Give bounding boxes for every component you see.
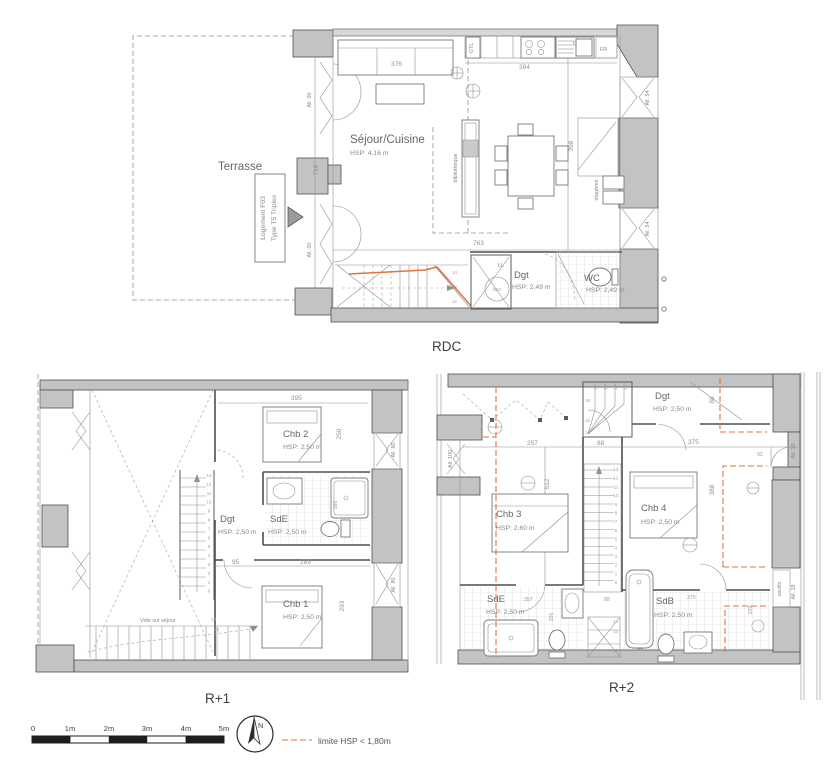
sill-label: All. 80	[391, 443, 397, 458]
dim-376: 376	[391, 61, 402, 68]
dim-229: 229	[748, 606, 754, 615]
dim-88: 88	[597, 440, 605, 447]
sill-label: All. 18	[791, 585, 797, 600]
coffee-table	[376, 84, 424, 104]
dim-289: 289	[300, 559, 311, 566]
chair	[556, 146, 568, 161]
r1-chb2: Chb 2 HSP: 2,50 m 395 250	[218, 395, 368, 462]
rdc-dgt-label: Dgt	[514, 270, 529, 281]
terrasse-outline: Terrasse Logement F03 Type T5 Triplex	[133, 36, 310, 300]
chb1-hsp: HSP: 2,50 m	[283, 614, 322, 621]
step-number: 16	[585, 398, 590, 403]
r1-dgt-label: Dgt	[220, 514, 235, 525]
r1-vide: Vide sur séjour	[92, 390, 213, 652]
sde-dim-257: 257	[524, 597, 533, 603]
r2-chb4: Chb 4 HSP: 2,50 m	[630, 472, 697, 538]
gtl-label: GTL	[469, 43, 475, 53]
r2-dgt-label: Dgt	[655, 391, 670, 402]
sdb-hsp: HSP: 2,50 m	[654, 612, 693, 619]
step-number: 18	[603, 385, 608, 390]
sde-hsp: HSP: 2,50 m	[268, 529, 307, 536]
toilet	[321, 522, 339, 537]
floorplan-drawing: Terrasse Logement F03 Type T5 Triplex Al…	[0, 0, 828, 765]
chair	[518, 198, 533, 209]
chair	[495, 146, 507, 161]
scale-tick: 5m	[219, 724, 229, 733]
dim-375: 375	[688, 439, 699, 446]
dim-250: 250	[336, 428, 343, 439]
r1-title: R+1	[205, 691, 230, 706]
step-number: 17	[593, 385, 598, 390]
sofa	[338, 40, 453, 75]
scale-tick: 0	[31, 724, 35, 733]
r2-sdb: SdB HSP: 2,50 m 375 229	[622, 570, 770, 662]
north-compass: N	[237, 716, 273, 752]
bed	[492, 494, 568, 552]
step-number: 19	[613, 385, 618, 390]
rdc-windows: All. 54 All. 54 All. 00 All. 00	[307, 62, 658, 284]
toilet	[658, 634, 674, 654]
dining-table	[508, 136, 554, 196]
hsp-legend: limite HSP < 1,80m	[282, 736, 391, 746]
floorplan-sheet: Terrasse Logement F03 Type T5 Triplex Al…	[0, 0, 828, 765]
sill-label: All. 100	[448, 450, 454, 468]
rdc-kitchen: GTL FR 384	[465, 36, 617, 71]
north-label: N	[258, 721, 263, 730]
wc-hsp: HSP: 2,49 m	[586, 287, 625, 294]
dim-395: 395	[291, 395, 302, 402]
step-number: 15	[585, 418, 590, 423]
chb3-label: Chb 3	[496, 509, 521, 520]
dim-88-v: 88	[709, 396, 716, 404]
scale-bar: 0 1m 2m 3m 4m 5m	[31, 724, 229, 743]
step-number: 13	[214, 627, 219, 632]
chair	[518, 124, 533, 135]
r2-central-stair: 131211109876543210	[584, 464, 621, 592]
washbasin	[267, 478, 302, 504]
bathtub	[626, 570, 653, 648]
scale-tick: 1m	[65, 724, 75, 733]
step-number: 12	[452, 299, 457, 304]
chb2-label: Chb 2	[283, 429, 308, 440]
rdc-title: RDC	[432, 339, 461, 354]
chair	[556, 170, 568, 185]
dim-95: 95	[232, 559, 240, 566]
r1-sde: SdE HSP: 2,50 m 160	[265, 475, 368, 543]
wc-label: WC	[584, 273, 600, 284]
sill-label: All. 54	[645, 222, 651, 237]
bookshelf-label: bibliothèque	[453, 153, 459, 182]
shelf	[603, 191, 624, 204]
dryer-label: SEC	[492, 287, 501, 292]
rdc-plan: Terrasse Logement F03 Type T5 Triplex Al…	[133, 25, 666, 354]
stair-step-numbers: 131211109876543210	[614, 467, 619, 585]
dim-763: 763	[473, 240, 484, 247]
dim-160: 160	[333, 501, 339, 510]
sill-label: All. 80	[391, 578, 397, 593]
sill-label: All. 00	[307, 243, 313, 258]
chb4-hsp: HSP: 2,50 m	[641, 519, 680, 526]
sdb-dim-375: 375	[687, 595, 696, 601]
sdb-label: SdB	[656, 596, 674, 607]
logement-tag-line2: Type T5 Triplex	[271, 194, 278, 241]
r1-chb1: Chb 1 HSP: 2,50 m 293	[262, 586, 346, 648]
rdc-dgt-hsp: HSP: 2,49 m	[512, 284, 551, 291]
step-number: 13	[613, 629, 618, 634]
fridge-label: FR	[600, 47, 607, 53]
dim-200: 200	[549, 613, 555, 622]
stove	[521, 37, 555, 58]
dim-88-b: 88	[604, 597, 610, 603]
r2-dgt: Dgt HSP: 2,50 m	[653, 391, 692, 413]
bookshelf	[462, 120, 479, 217]
hinge-dot	[662, 307, 666, 311]
chb1-label: Chb 1	[283, 599, 308, 610]
scale-tick: 4m	[181, 724, 191, 733]
shower	[484, 620, 538, 656]
sill-label: All. 54	[645, 91, 651, 106]
dim-398: 398	[568, 140, 575, 151]
chb4-label: Chb 4	[641, 503, 666, 514]
shower	[331, 478, 368, 518]
step-number: 14	[211, 617, 216, 622]
dim-718: 718	[313, 164, 320, 175]
sill-label: All. 18	[791, 444, 797, 459]
hsp-legend-label: limite HSP < 1,80m	[318, 736, 391, 746]
r2-sde: SdE 257 HSP: 2,50 m 200	[462, 587, 583, 658]
toilet	[549, 630, 565, 650]
tag-pointer-triangle	[288, 207, 303, 227]
r2-dgt-hsp: HSP: 2,50 m	[653, 406, 692, 413]
dim-92: 92	[757, 452, 763, 458]
r2-winder-stair: 16 15 14 17 18 19 20	[583, 382, 632, 437]
logement-tag-line1: Logement F03	[260, 196, 267, 240]
step-number: 12	[613, 648, 618, 653]
chair	[495, 170, 507, 185]
dim-384: 384	[519, 64, 530, 71]
dim-293: 293	[339, 600, 346, 611]
sill-label: All. 00	[307, 93, 313, 108]
r1-plan: All. 80 All. 80 Vide sur séjour Chb 2 HS…	[36, 374, 408, 706]
stair-step-numbers: 131211109876543210	[207, 473, 212, 594]
washer-label: LL	[498, 263, 504, 269]
rdc-sejour: 376 Séjour/Cuisine HSP: 4,16 m 718 bibli…	[313, 40, 624, 250]
shelves-label: étagères	[594, 179, 600, 200]
scale-tick: 2m	[104, 724, 114, 733]
scale-tick: 3m	[142, 724, 152, 733]
sde-hsp: HSP: 2,50 m	[486, 609, 525, 616]
r2-plan: All. 100 All. 18 oscillo All. 18 257 88 …	[437, 372, 820, 700]
dim-388: 388	[709, 484, 716, 495]
r2-chb3: Chb 3 HSP: 2,60 m	[492, 494, 568, 552]
r2-title: R+2	[609, 680, 634, 695]
dim-512: 512	[544, 478, 551, 489]
step-number: 20	[623, 385, 628, 390]
chb3-hsp: HSP: 2,60 m	[496, 525, 535, 532]
r1-dgt-hsp: HSP: 2,50 m	[218, 529, 257, 536]
sejour-hsp: HSP: 4,16 m	[350, 150, 389, 157]
step-number: 14	[613, 619, 618, 624]
step-number: 14	[585, 430, 590, 435]
dim-257: 257	[527, 440, 538, 447]
terrasse-label: Terrasse	[218, 161, 262, 173]
rdc-service-rooms: LL SEC Dgt HSP: 2,49 m WC HSP: 2,49 m	[470, 252, 625, 309]
sde-label: SdE	[270, 514, 288, 525]
step-number: 14	[452, 270, 457, 275]
chb2-hsp: HSP: 2,50 m	[283, 444, 322, 451]
toilet-tank	[341, 520, 350, 537]
window-type-label: oscillo	[777, 582, 783, 597]
sejour-label: Séjour/Cuisine	[350, 134, 425, 146]
vide-label: Vide sur séjour	[140, 618, 176, 624]
hinge-dot	[662, 277, 666, 281]
shelf	[603, 176, 624, 189]
rdc-stairs: 14 13 12	[335, 265, 471, 308]
